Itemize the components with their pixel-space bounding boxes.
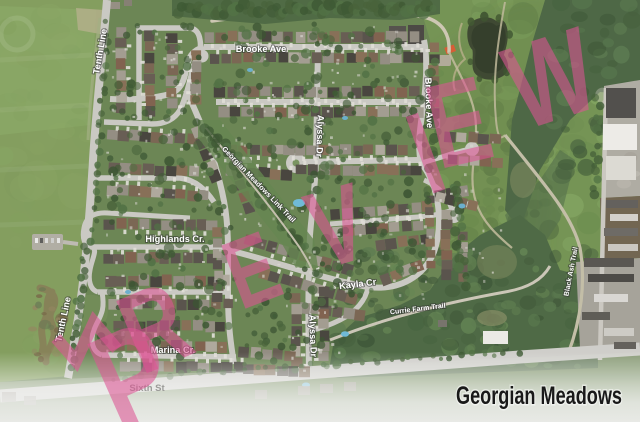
- svg-text:Georgian Meadows: Georgian Meadows: [456, 382, 622, 410]
- svg-text:Alyssa Dr: Alyssa Dr: [314, 115, 325, 158]
- svg-text:Alyssa Dr: Alyssa Dr: [307, 315, 318, 358]
- svg-text:Highlands Cr.: Highlands Cr.: [145, 234, 204, 244]
- svg-text:Brooke Ave: Brooke Ave: [236, 44, 286, 54]
